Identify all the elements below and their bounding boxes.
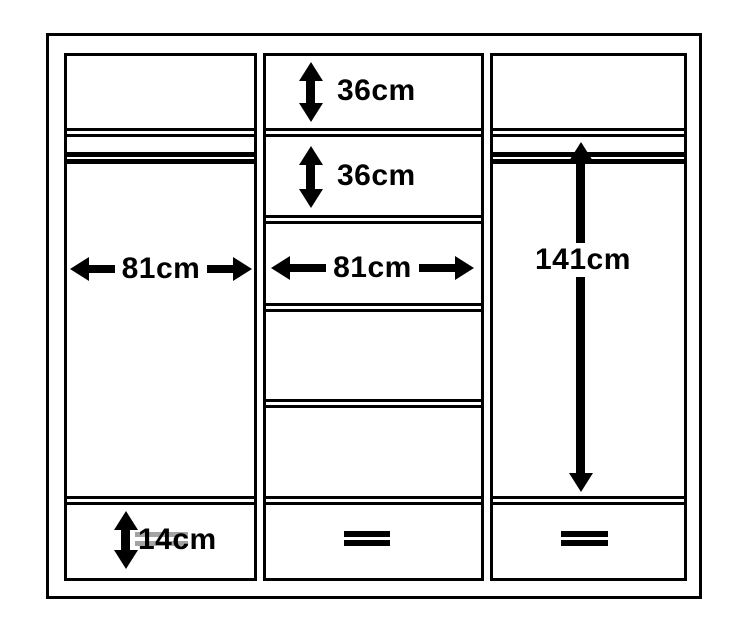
shelf-divider: [67, 134, 254, 137]
middle-column: [263, 53, 484, 581]
arrow-down-icon: [299, 103, 323, 122]
shelf-divider: [266, 221, 481, 224]
shelf-divider: [266, 134, 481, 137]
drawer-divider: [493, 502, 684, 505]
dimension-arrow-36cm-second: [298, 146, 324, 208]
shelf-divider: [493, 134, 684, 137]
shelf-divider: [266, 215, 481, 218]
drawer-divider: [493, 496, 684, 499]
arrow-right-icon: [233, 257, 252, 281]
left-column: [64, 53, 257, 581]
dimension-arrow-36cm-top: [298, 62, 324, 122]
shelf-divider: [266, 399, 481, 402]
shelf-divider: [493, 128, 684, 131]
dimension-arrow-81cm-middle: 81cm: [271, 255, 474, 281]
wardrobe-dimension-diagram: 36cm 36cm 81cm 81cm 141cm 14cm: [0, 0, 752, 636]
dimension-arrow-81cm-left: 81cm: [70, 256, 252, 282]
dimension-label-141cm: 141cm: [535, 243, 627, 277]
dimension-arrow-14cm: [113, 511, 139, 569]
shelf-divider: [266, 128, 481, 131]
drawer-handle-middle: [344, 531, 390, 546]
arrow-right-icon: [455, 256, 474, 280]
dimension-label-36cm-top: 36cm: [337, 74, 416, 108]
hanging-rail-left: [67, 159, 254, 164]
hanging-rail-left: [67, 152, 254, 157]
drawer-divider: [266, 496, 481, 499]
drawer-handle-right: [561, 531, 608, 546]
arrow-down-icon: [299, 189, 323, 208]
drawer-divider: [266, 502, 481, 505]
dimension-label-81cm-left: 81cm: [115, 252, 208, 286]
dimension-arrow-141cm: [568, 142, 594, 492]
dimension-label-81cm-middle: 81cm: [326, 251, 419, 285]
drawer-divider: [67, 496, 254, 499]
arrow-down-icon: [569, 473, 593, 492]
drawer-divider: [67, 502, 254, 505]
shelf-divider: [266, 309, 481, 312]
shelf-divider: [266, 405, 481, 408]
arrow-down-icon: [114, 550, 138, 569]
dimension-label-14cm: 14cm: [138, 523, 217, 557]
shelf-divider: [266, 303, 481, 306]
dimension-label-36cm-second: 36cm: [337, 159, 416, 193]
shelf-divider: [67, 128, 254, 131]
